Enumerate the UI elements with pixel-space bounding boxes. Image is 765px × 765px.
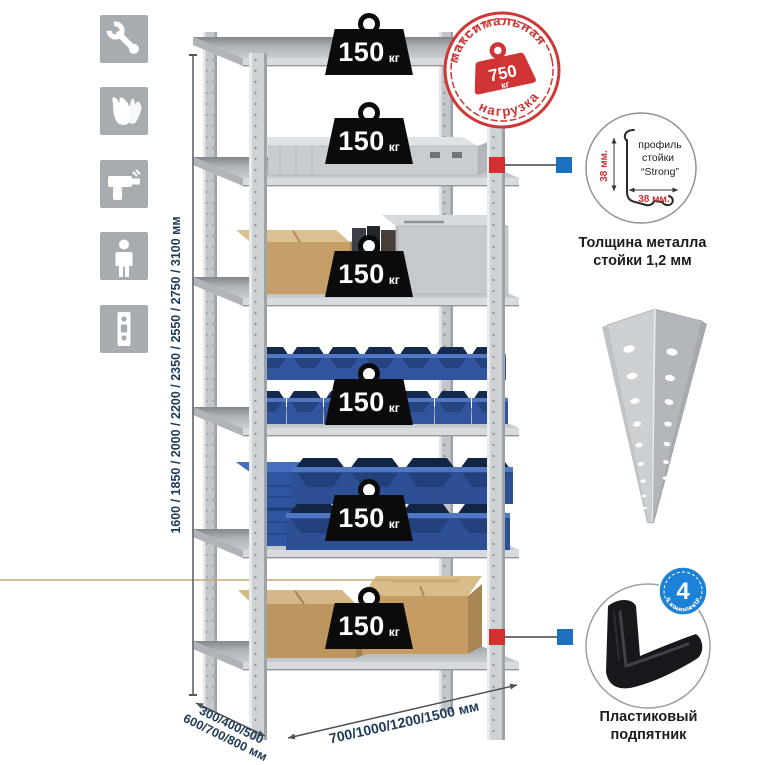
profile-text-2: стойки <box>642 152 674 164</box>
max-load-stamp: максимальная нагрузка 750 кг <box>434 2 569 137</box>
shelf-load-unit: кг <box>389 517 400 531</box>
foot-caption-line2: подпятник <box>566 726 731 744</box>
height-dimension-line <box>189 55 197 695</box>
shelf-load-badge-5: 150кг <box>325 479 413 541</box>
shelf-load-badge-3: 150кг <box>325 235 413 297</box>
shelf-load-badge-4: 150кг <box>325 363 413 425</box>
height-dimensions-label: 1600 / 1850 / 2000 / 2200 / 2350 / 2550 … <box>169 216 183 533</box>
included-badge-value: 4 <box>676 578 690 605</box>
profile-text-1: профиль <box>638 139 682 151</box>
foot-caption: Пластиковый подпятник <box>566 708 731 744</box>
shelf-load-unit: кг <box>389 140 400 154</box>
callout-connector-bottom <box>489 629 573 645</box>
foot-callout: 4 в комплекте <box>586 567 710 708</box>
shelf-load-badge-1: 150кг <box>325 13 413 75</box>
shelf-load-value: 150 <box>338 387 385 418</box>
shelf-load-unit: кг <box>389 401 400 415</box>
shelf-load-badge-2: 150кг <box>325 102 413 164</box>
shelf-load-badge-6: 150кг <box>325 587 413 649</box>
profile-caption: Толщина металла стойки 1,2 мм <box>560 234 725 270</box>
rack-rear-left-post <box>203 32 217 712</box>
angle-post-image <box>602 309 707 523</box>
rack-front-left-post <box>249 53 267 740</box>
foot-caption-line1: Пластиковый <box>566 708 731 726</box>
shelf-load-value: 150 <box>338 611 385 642</box>
red-marker-bottom <box>489 629 505 645</box>
blue-marker-bottom <box>557 629 573 645</box>
shelf-load-unit: кг <box>389 625 400 639</box>
profile-caption-line1: Толщина металла <box>560 234 725 252</box>
gloves-icon <box>100 87 148 135</box>
profile-text-3: “Strong” <box>641 166 679 178</box>
blue-marker-top <box>556 157 572 173</box>
callout-connector-top <box>489 157 572 173</box>
shelf-load-value: 150 <box>338 126 385 157</box>
profile-dim-vertical: 38 мм. <box>599 150 610 182</box>
shelf-load-value: 150 <box>338 37 385 68</box>
product-infographic: максимальная нагрузка 750 кг 38 мм. <box>0 0 765 765</box>
person-icon <box>100 232 148 280</box>
shelf-load-unit: кг <box>389 51 400 65</box>
included-badge: 4 в комплекте <box>659 567 707 615</box>
profile-dim-horizontal: 38 мм. <box>638 194 670 205</box>
shelving-rack <box>0 32 519 740</box>
wrench-icon <box>100 15 148 63</box>
profile-callout: 38 мм. 38 мм. профиль стойки “Strong” <box>586 113 696 223</box>
shelf-load-unit: кг <box>389 273 400 287</box>
shelf-load-value: 150 <box>338 259 385 290</box>
rack-post-icon <box>100 305 148 353</box>
drill-icon <box>100 160 148 208</box>
red-marker-top <box>489 157 505 173</box>
shelf-load-value: 150 <box>338 503 385 534</box>
profile-caption-line2: стойки 1,2 мм <box>560 252 725 270</box>
